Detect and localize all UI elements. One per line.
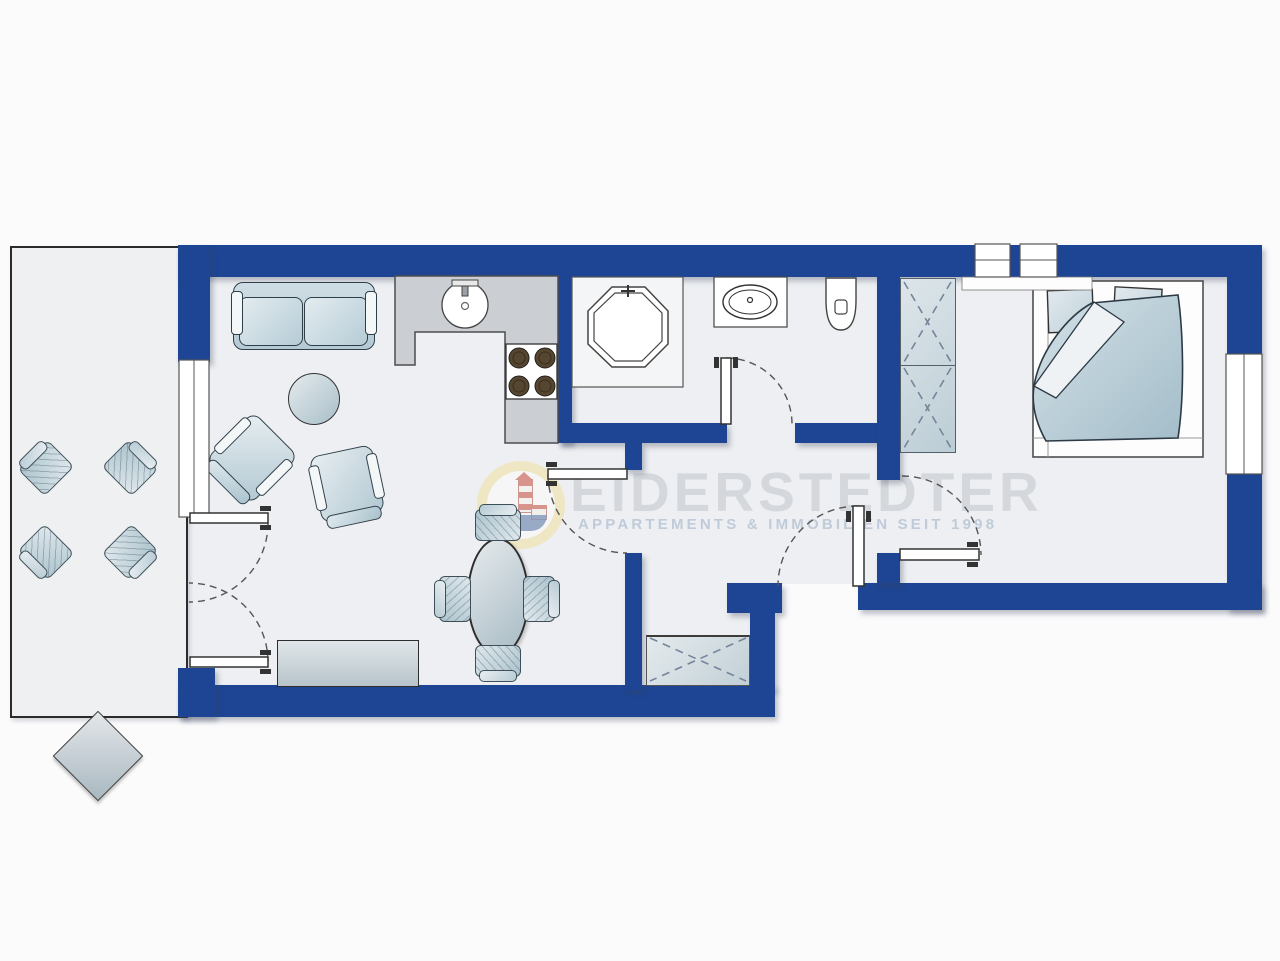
terrace-table: [53, 711, 144, 802]
floor-plan-canvas: EIDERSTEDTER APPARTEMENTS & IMMOBILIEN S…: [0, 0, 1280, 961]
dining-table: [467, 538, 529, 656]
wall-top: [178, 245, 1262, 277]
dining-chair-back: [434, 580, 446, 618]
bedroom-wardrobe: [900, 278, 956, 453]
terrace-chair-ne: [102, 440, 159, 497]
wall-hall-bottom: [727, 583, 782, 613]
watermark-subtitle: APPARTEMENTS & IMMOBILIEN SEIT 1998: [578, 516, 997, 533]
sofa: [233, 282, 375, 350]
sofa-cushion-left: [239, 297, 303, 346]
terrace: [10, 246, 188, 718]
hall-wardrobe: [646, 635, 750, 686]
wall-bottom-left: [178, 685, 775, 717]
wall-left-corner: [178, 668, 215, 717]
wall-bedroom-left-upper: [877, 277, 900, 480]
wall-niche-right: [750, 613, 775, 690]
terrace-chair-se: [102, 524, 159, 581]
sideboard: [277, 640, 419, 687]
terrace-chair-nw: [18, 440, 75, 497]
wall-bedroom-bottom: [858, 583, 1262, 610]
sofa-cushion-right: [304, 297, 368, 346]
wall-bedroom-left-stub: [877, 553, 900, 583]
wall-bath-bottom-right: [795, 423, 877, 443]
terrace-chair-back: [17, 548, 50, 581]
wall-living-hall-stub: [625, 443, 642, 470]
lighthouse-roof-icon: [515, 472, 533, 480]
dining-chair-back: [548, 580, 560, 618]
dining-chair-right: [523, 576, 555, 622]
wardrobe-divider: [901, 365, 955, 366]
armchair-right: [309, 444, 386, 524]
terrace-chair-back: [17, 439, 50, 472]
dining-chair-bottom: [475, 645, 521, 677]
terrace-chair-back: [126, 548, 159, 581]
wall-kitchen-bath-divider: [558, 277, 572, 443]
sofa-armrest-right: [365, 291, 377, 335]
dining-chair-top: [475, 509, 521, 541]
terrace-chair-back: [126, 439, 159, 472]
coffee-table: [288, 373, 340, 425]
wall-right: [1227, 277, 1262, 610]
wall-bath-bottom-left: [558, 423, 727, 443]
wall-living-hall-lower: [625, 553, 642, 690]
sofa-armrest-left: [231, 291, 243, 335]
terrace-chair-sw: [18, 524, 75, 581]
dining-chair-back: [479, 504, 517, 516]
wall-left-top: [178, 245, 210, 362]
dining-chair-left: [439, 576, 471, 622]
entrance-recess: [780, 584, 860, 618]
dining-chair-back: [479, 670, 517, 682]
